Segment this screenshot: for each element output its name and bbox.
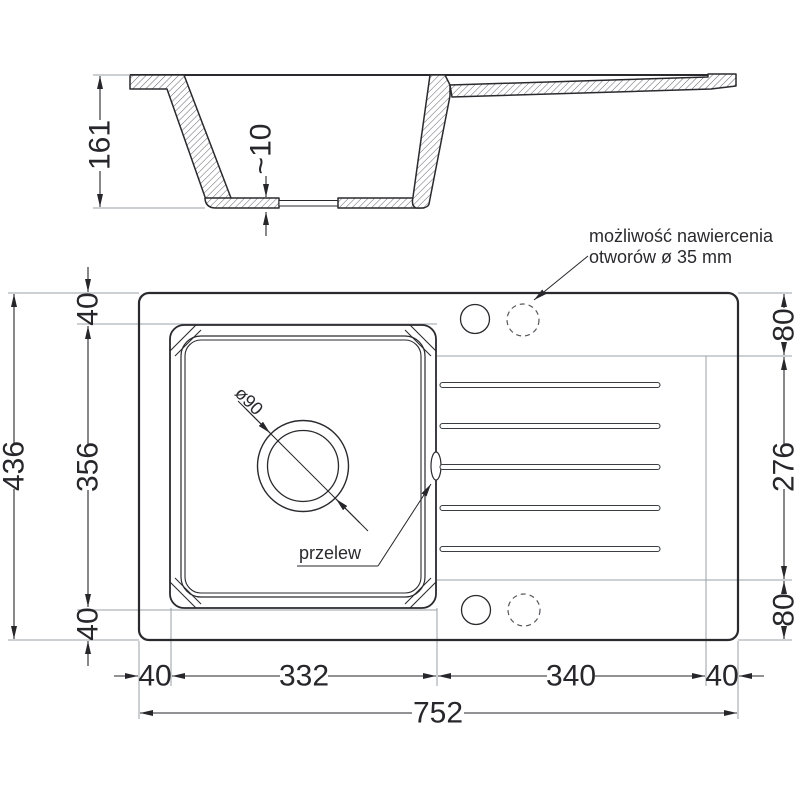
dim-text-10: ~10 bbox=[245, 124, 278, 175]
section-bottom-left bbox=[205, 198, 279, 208]
dim-text-80-bottom: 80 bbox=[768, 593, 800, 626]
dim-text-436: 436 bbox=[0, 441, 31, 491]
section-drain-recess bbox=[279, 201, 338, 207]
technical-drawing: 161 ~10 możliwość nawiercenia otworów ø … bbox=[0, 0, 800, 800]
drainer-groove bbox=[440, 506, 660, 511]
overflow-text: przelew bbox=[299, 543, 362, 563]
dim-text-40-bottom-right: 40 bbox=[705, 660, 738, 693]
drainer-groove bbox=[440, 383, 660, 388]
dim-text-752: 752 bbox=[413, 697, 463, 730]
drainer-groove bbox=[440, 547, 660, 552]
canvas-background bbox=[0, 0, 800, 800]
drainer-groove bbox=[440, 465, 660, 470]
dim-text-332: 332 bbox=[279, 660, 329, 693]
dim-text-80-top: 80 bbox=[768, 308, 800, 341]
dim-text-340: 340 bbox=[546, 660, 596, 693]
dim-text-40-bottom-left: 40 bbox=[138, 660, 171, 693]
drill-note-line2: otworów ø 35 mm bbox=[589, 247, 732, 267]
drill-note-line1: możliwość nawiercenia bbox=[589, 226, 774, 246]
dim-text-356: 356 bbox=[72, 442, 105, 492]
dim-text-40-left-bottom: 40 bbox=[72, 607, 105, 640]
dim-text-40-left-top: 40 bbox=[72, 292, 105, 325]
drainer-groove bbox=[440, 424, 660, 429]
dim-text-276: 276 bbox=[768, 442, 800, 492]
overflow-slot bbox=[431, 452, 441, 480]
dim-text-161: 161 bbox=[84, 120, 117, 170]
